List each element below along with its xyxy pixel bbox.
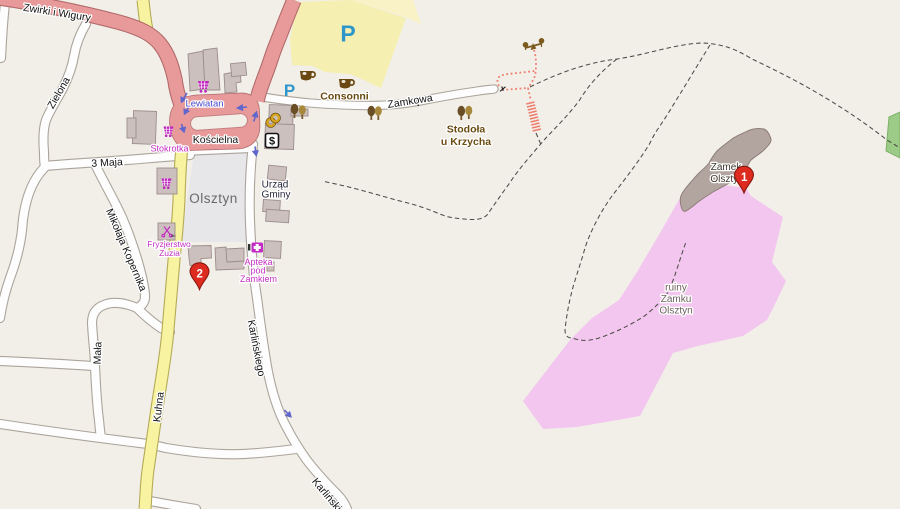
- svg-text:$: $: [269, 136, 275, 148]
- svg-text:1: 1: [741, 172, 748, 184]
- svg-text:3 Maja: 3 Maja: [91, 156, 123, 170]
- svg-text:Olsztyn: Olsztyn: [189, 191, 238, 206]
- svg-text:Stokrotka: Stokrotka: [150, 144, 188, 154]
- svg-text:Stodoła: Stodoła: [447, 124, 486, 136]
- svg-text:Olsztyn: Olsztyn: [659, 306, 692, 317]
- svg-text:Mała: Mała: [92, 341, 105, 364]
- svg-text:Kościelna: Kościelna: [193, 134, 239, 146]
- svg-text:db: db: [171, 233, 176, 238]
- svg-text:2: 2: [196, 269, 202, 281]
- svg-text:P: P: [284, 81, 295, 100]
- svg-text:Zamku: Zamku: [661, 294, 692, 305]
- svg-text:Zuzia: Zuzia: [159, 248, 180, 258]
- svg-text:Zamkiem: Zamkiem: [240, 274, 277, 284]
- svg-text:u Krzycha: u Krzycha: [441, 136, 491, 148]
- svg-text:Consonni: Consonni: [320, 91, 368, 103]
- svg-text:Lewiatan: Lewiatan: [185, 99, 223, 110]
- svg-text:Gminy: Gminy: [262, 190, 291, 201]
- svg-text:ruiny: ruiny: [665, 283, 687, 294]
- svg-text:P: P: [340, 21, 355, 47]
